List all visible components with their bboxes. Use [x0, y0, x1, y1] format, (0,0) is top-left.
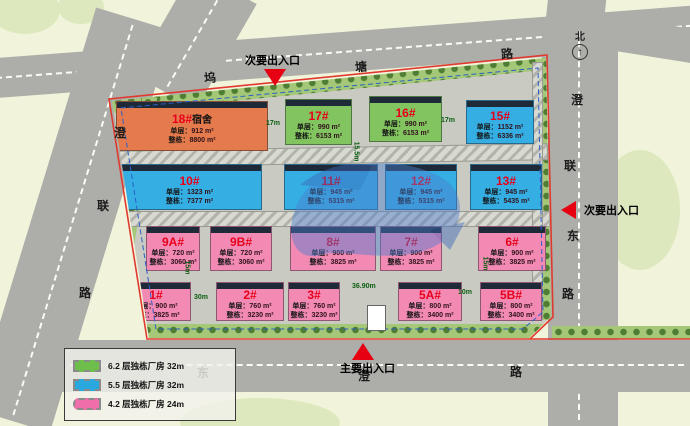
legend-chip-blue	[73, 379, 101, 391]
road-name-char: 塘	[354, 57, 368, 75]
dimension-label: 15m	[184, 260, 191, 274]
road-name-char: 路	[500, 44, 514, 62]
entrance-marker-icon	[561, 201, 576, 219]
north-arrow-icon: ↑	[572, 44, 588, 60]
legend: 6.2 层独栋厂房 32m 5.5 层独栋厂房 32m 4.2 层独栋厂房 24…	[64, 348, 236, 421]
road-name-char: 路	[79, 284, 91, 301]
road-name-char: 澄	[571, 91, 583, 108]
dimension-label: 15m	[482, 256, 489, 270]
site-plan: 18#宿舍 单层：912 m² 整栋：8800 m² 17# 单层：990 m²…	[0, 0, 690, 426]
entrance-label-top: 次要出入口	[245, 52, 300, 68]
gate-house	[367, 305, 386, 331]
entrance-label-bottom: 主要出入口	[340, 360, 395, 376]
road-name-char: 东	[567, 227, 579, 244]
road-name-char: 联	[564, 157, 576, 174]
legend-label: 5.5 层独栋厂房 32m	[108, 379, 184, 391]
road-name-char: 坞	[203, 68, 217, 86]
entrance-label-right: 次要出入口	[584, 202, 639, 218]
entrance-marker-icon	[264, 69, 286, 86]
north-label: 北	[572, 28, 588, 43]
entrance-marker-icon	[352, 343, 374, 360]
legend-item: 6.2 层独栋厂房 32m	[73, 356, 227, 375]
legend-label: 4.2 层独栋厂房 24m	[108, 398, 184, 410]
road-name-char: 路	[562, 285, 574, 302]
dimension-label: 36.90m	[352, 283, 376, 290]
dimension-label: 17m	[266, 120, 280, 127]
dimension-label: 10m	[458, 289, 472, 296]
legend-item: 4.2 层独栋厂房 24m	[73, 394, 227, 413]
dimension-label: 30m	[194, 294, 208, 301]
north-compass: 北 ↑	[572, 28, 588, 60]
legend-item: 5.5 层独栋厂房 32m	[73, 375, 227, 394]
road-name-char: 澄	[114, 124, 126, 141]
dimension-label: 17m	[441, 117, 455, 124]
road-name-char: 路	[510, 363, 522, 380]
legend-chip-green	[73, 360, 101, 372]
legend-label: 6.2 层独栋厂房 32m	[108, 360, 184, 372]
road-name-char: 联	[97, 197, 109, 214]
dimension-label: 15.5m	[352, 142, 359, 162]
legend-chip-pink	[73, 398, 101, 410]
